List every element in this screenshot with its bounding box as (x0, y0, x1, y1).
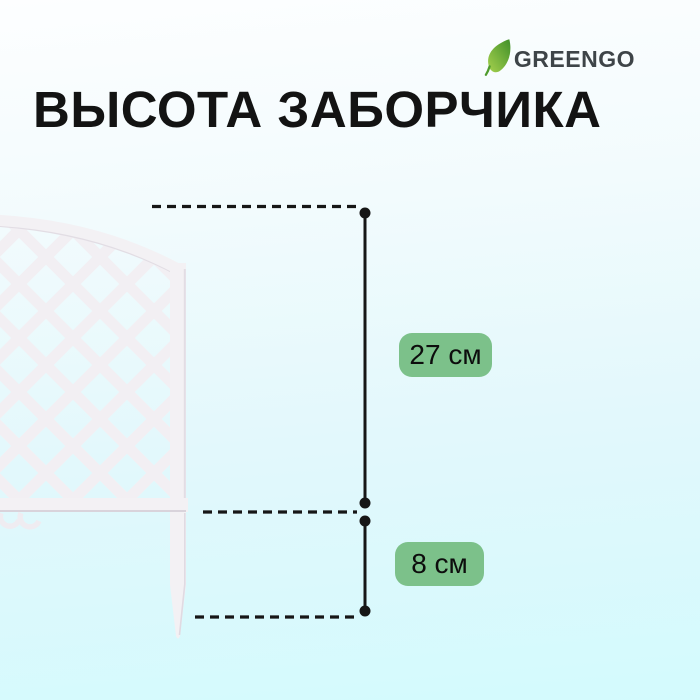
extent-dot (360, 606, 371, 617)
leaf-icon (484, 38, 514, 76)
brand-name: GREENGO (514, 46, 635, 73)
infographic-canvas: GREENGO ВЫСОТА ЗАБОРЧИКА (0, 0, 700, 700)
scroll-ornaments (0, 513, 39, 527)
fence-illustration (0, 195, 200, 665)
ground-stake (170, 512, 186, 639)
dimension-label-27cm: 27 см (409, 339, 481, 371)
extent-dot (360, 498, 371, 509)
extent-dot (360, 516, 371, 527)
dimension-label-8cm: 8 см (411, 548, 468, 580)
brand-logo: GREENGO (484, 42, 635, 76)
bottom-rail (0, 498, 188, 512)
right-post (170, 263, 186, 513)
dimension-badge-27cm: 27 см (399, 333, 492, 377)
dimension-badge-8cm: 8 см (395, 542, 484, 586)
page-title: ВЫСОТА ЗАБОРЧИКА (33, 80, 602, 139)
extent-dot (360, 208, 371, 219)
